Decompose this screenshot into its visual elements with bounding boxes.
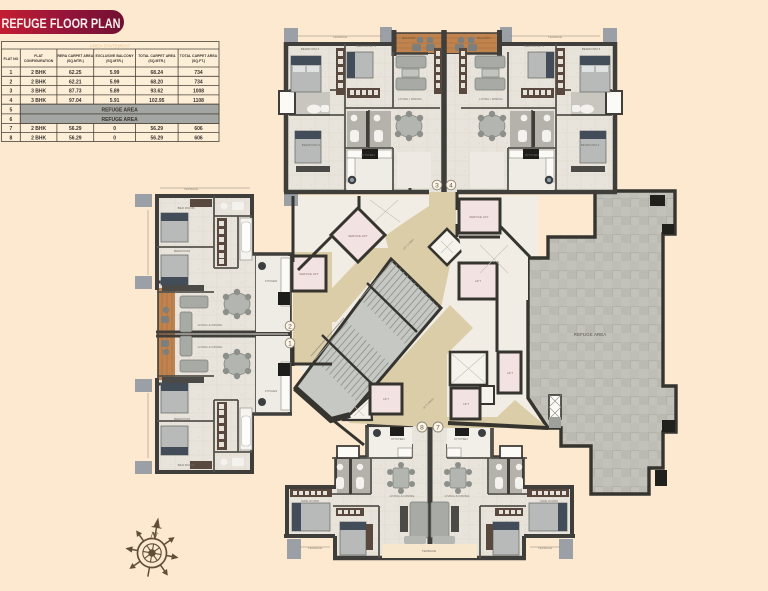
svg-text:LIFT: LIFT xyxy=(507,371,513,375)
svg-text:5.91: 5.91 xyxy=(110,98,120,104)
svg-text:TERRACE: TERRACE xyxy=(548,35,562,39)
svg-text:8: 8 xyxy=(420,424,424,431)
svg-text:KITCHEN: KITCHEN xyxy=(391,437,405,441)
svg-text:93.62: 93.62 xyxy=(151,89,164,95)
svg-text:2 BHK: 2 BHK xyxy=(31,70,46,76)
svg-text:BEDROOM 2: BEDROOM 2 xyxy=(581,143,600,147)
svg-text:0: 0 xyxy=(113,136,116,142)
svg-text:62.21: 62.21 xyxy=(69,79,82,85)
svg-text:734: 734 xyxy=(194,79,203,85)
svg-text:606: 606 xyxy=(194,126,203,132)
svg-text:2: 2 xyxy=(10,79,13,85)
svg-text:BEDROOM 3: BEDROOM 3 xyxy=(582,47,601,51)
svg-text:TERRACE: TERRACE xyxy=(422,549,436,553)
svg-text:LIFT: LIFT xyxy=(383,397,389,401)
svg-text:68.24: 68.24 xyxy=(151,70,164,76)
svg-text:1: 1 xyxy=(288,340,292,347)
svg-text:(SQ.FT.): (SQ.FT.) xyxy=(192,59,205,63)
svg-text:KITCHEN: KITCHEN xyxy=(265,279,277,283)
svg-text:LIVING / DINING: LIVING / DINING xyxy=(398,97,422,101)
svg-text:1108: 1108 xyxy=(193,98,204,104)
svg-text:2 BHK: 2 BHK xyxy=(31,136,46,142)
svg-text:LIVING & DINING: LIVING & DINING xyxy=(445,494,470,498)
svg-text:TOTAL CARPET AREA: TOTAL CARPET AREA xyxy=(180,54,218,58)
svg-text:SERVICE LIFT: SERVICE LIFT xyxy=(469,215,489,219)
svg-text:(SQ.MTR.): (SQ.MTR.) xyxy=(67,59,84,63)
svg-text:TERRACE: TERRACE xyxy=(308,546,322,550)
svg-text:97.04: 97.04 xyxy=(69,98,82,104)
svg-text:BEDROOM 3: BEDROOM 3 xyxy=(301,47,320,51)
svg-text:0: 0 xyxy=(113,126,116,132)
svg-text:LIVING & DINING: LIVING & DINING xyxy=(390,494,415,498)
svg-text:56.29: 56.29 xyxy=(151,136,164,142)
svg-text:BEDROOM 2: BEDROOM 2 xyxy=(302,143,321,147)
svg-text:1: 1 xyxy=(10,70,13,76)
svg-text:2 BHK: 2 BHK xyxy=(31,126,46,132)
svg-text:CONFIGURATION: CONFIGURATION xyxy=(24,59,54,63)
svg-text:BED ROOM 4: BED ROOM 4 xyxy=(356,44,376,48)
svg-text:KITCHEN: KITCHEN xyxy=(454,437,468,441)
svg-text:3: 3 xyxy=(435,182,439,189)
svg-text:606: 606 xyxy=(194,136,203,142)
svg-text:5.89: 5.89 xyxy=(110,89,120,95)
svg-text:3 BHK: 3 BHK xyxy=(31,98,46,104)
svg-text:87.73: 87.73 xyxy=(69,89,82,95)
svg-text:5.99: 5.99 xyxy=(110,79,120,85)
svg-text:AREA STATEMENT: AREA STATEMENT xyxy=(90,44,131,49)
svg-text:BED ROOM 4: BED ROOM 4 xyxy=(524,44,544,48)
svg-text:6: 6 xyxy=(10,117,13,123)
svg-text:2: 2 xyxy=(288,323,292,330)
svg-text:KITCHEN: KITCHEN xyxy=(361,153,375,157)
svg-text:KITCHEN: KITCHEN xyxy=(265,389,277,393)
svg-text:LIVING & DINING: LIVING & DINING xyxy=(198,323,223,327)
svg-text:5: 5 xyxy=(10,107,13,113)
svg-text:4: 4 xyxy=(10,98,13,104)
svg-text:BED ROOM: BED ROOM xyxy=(178,206,195,210)
svg-text:TOTAL CARPET AREA: TOTAL CARPET AREA xyxy=(138,54,176,58)
svg-text:4: 4 xyxy=(449,182,453,189)
svg-text:2 BHK: 2 BHK xyxy=(31,79,46,85)
svg-text:56.29: 56.29 xyxy=(69,136,82,142)
svg-text:734: 734 xyxy=(194,70,203,76)
svg-text:3: 3 xyxy=(10,89,13,95)
svg-text:(SQ.MTR.): (SQ.MTR.) xyxy=(148,59,165,63)
svg-text:REFUGE FLOOR PLAN: REFUGE FLOOR PLAN xyxy=(2,16,121,32)
svg-text:SERVICE LIFT: SERVICE LIFT xyxy=(348,234,368,238)
svg-text:BALCONY: BALCONY xyxy=(402,36,416,40)
svg-text:1008: 1008 xyxy=(193,89,204,95)
svg-text:BEDROOM: BEDROOM xyxy=(174,249,190,253)
svg-text:68.20: 68.20 xyxy=(151,79,164,85)
svg-text:5.99: 5.99 xyxy=(110,70,120,76)
svg-text:8: 8 xyxy=(10,136,13,142)
svg-text:BED ROOM: BED ROOM xyxy=(178,463,195,467)
svg-text:FLAT NO: FLAT NO xyxy=(3,57,18,61)
svg-text:62.25: 62.25 xyxy=(69,70,82,76)
svg-text:56.29: 56.29 xyxy=(151,126,164,132)
svg-text:BEDROOM: BEDROOM xyxy=(174,417,190,421)
svg-text:SIDE ROOM: SIDE ROOM xyxy=(301,499,319,503)
svg-text:LIVING / DINING: LIVING / DINING xyxy=(479,97,503,101)
svg-text:56.29: 56.29 xyxy=(69,126,82,132)
svg-text:7: 7 xyxy=(436,424,440,431)
svg-text:LIVING & DINING: LIVING & DINING xyxy=(198,345,223,349)
svg-text:BALCONY: BALCONY xyxy=(477,36,491,40)
svg-text:RERA CARPET AREA: RERA CARPET AREA xyxy=(57,54,93,58)
svg-text:TERRACE: TERRACE xyxy=(184,187,198,191)
svg-text:SIDE ROOM: SIDE ROOM xyxy=(540,499,558,503)
svg-text:TERRACE: TERRACE xyxy=(333,35,347,39)
svg-text:REFUGE AREA: REFUGE AREA xyxy=(101,107,138,113)
svg-text:EXCLUSIVE BALCONY: EXCLUSIVE BALCONY xyxy=(96,54,135,58)
svg-text:REFUGE AREA: REFUGE AREA xyxy=(101,117,138,123)
svg-text:7: 7 xyxy=(10,126,13,132)
svg-text:REFUGE AREA: REFUGE AREA xyxy=(574,332,608,337)
svg-text:LIFT: LIFT xyxy=(475,279,481,283)
svg-text:(SQ.MTR.): (SQ.MTR.) xyxy=(106,59,123,63)
svg-text:TERRACE: TERRACE xyxy=(538,546,552,550)
svg-text:KITCHEN: KITCHEN xyxy=(525,153,539,157)
svg-text:LIFT: LIFT xyxy=(463,402,469,406)
svg-text:SERVICE LIFT: SERVICE LIFT xyxy=(299,272,319,276)
svg-text:FLAT: FLAT xyxy=(34,54,44,58)
svg-text:3 BHK: 3 BHK xyxy=(31,89,46,95)
svg-text:102.95: 102.95 xyxy=(149,98,165,104)
